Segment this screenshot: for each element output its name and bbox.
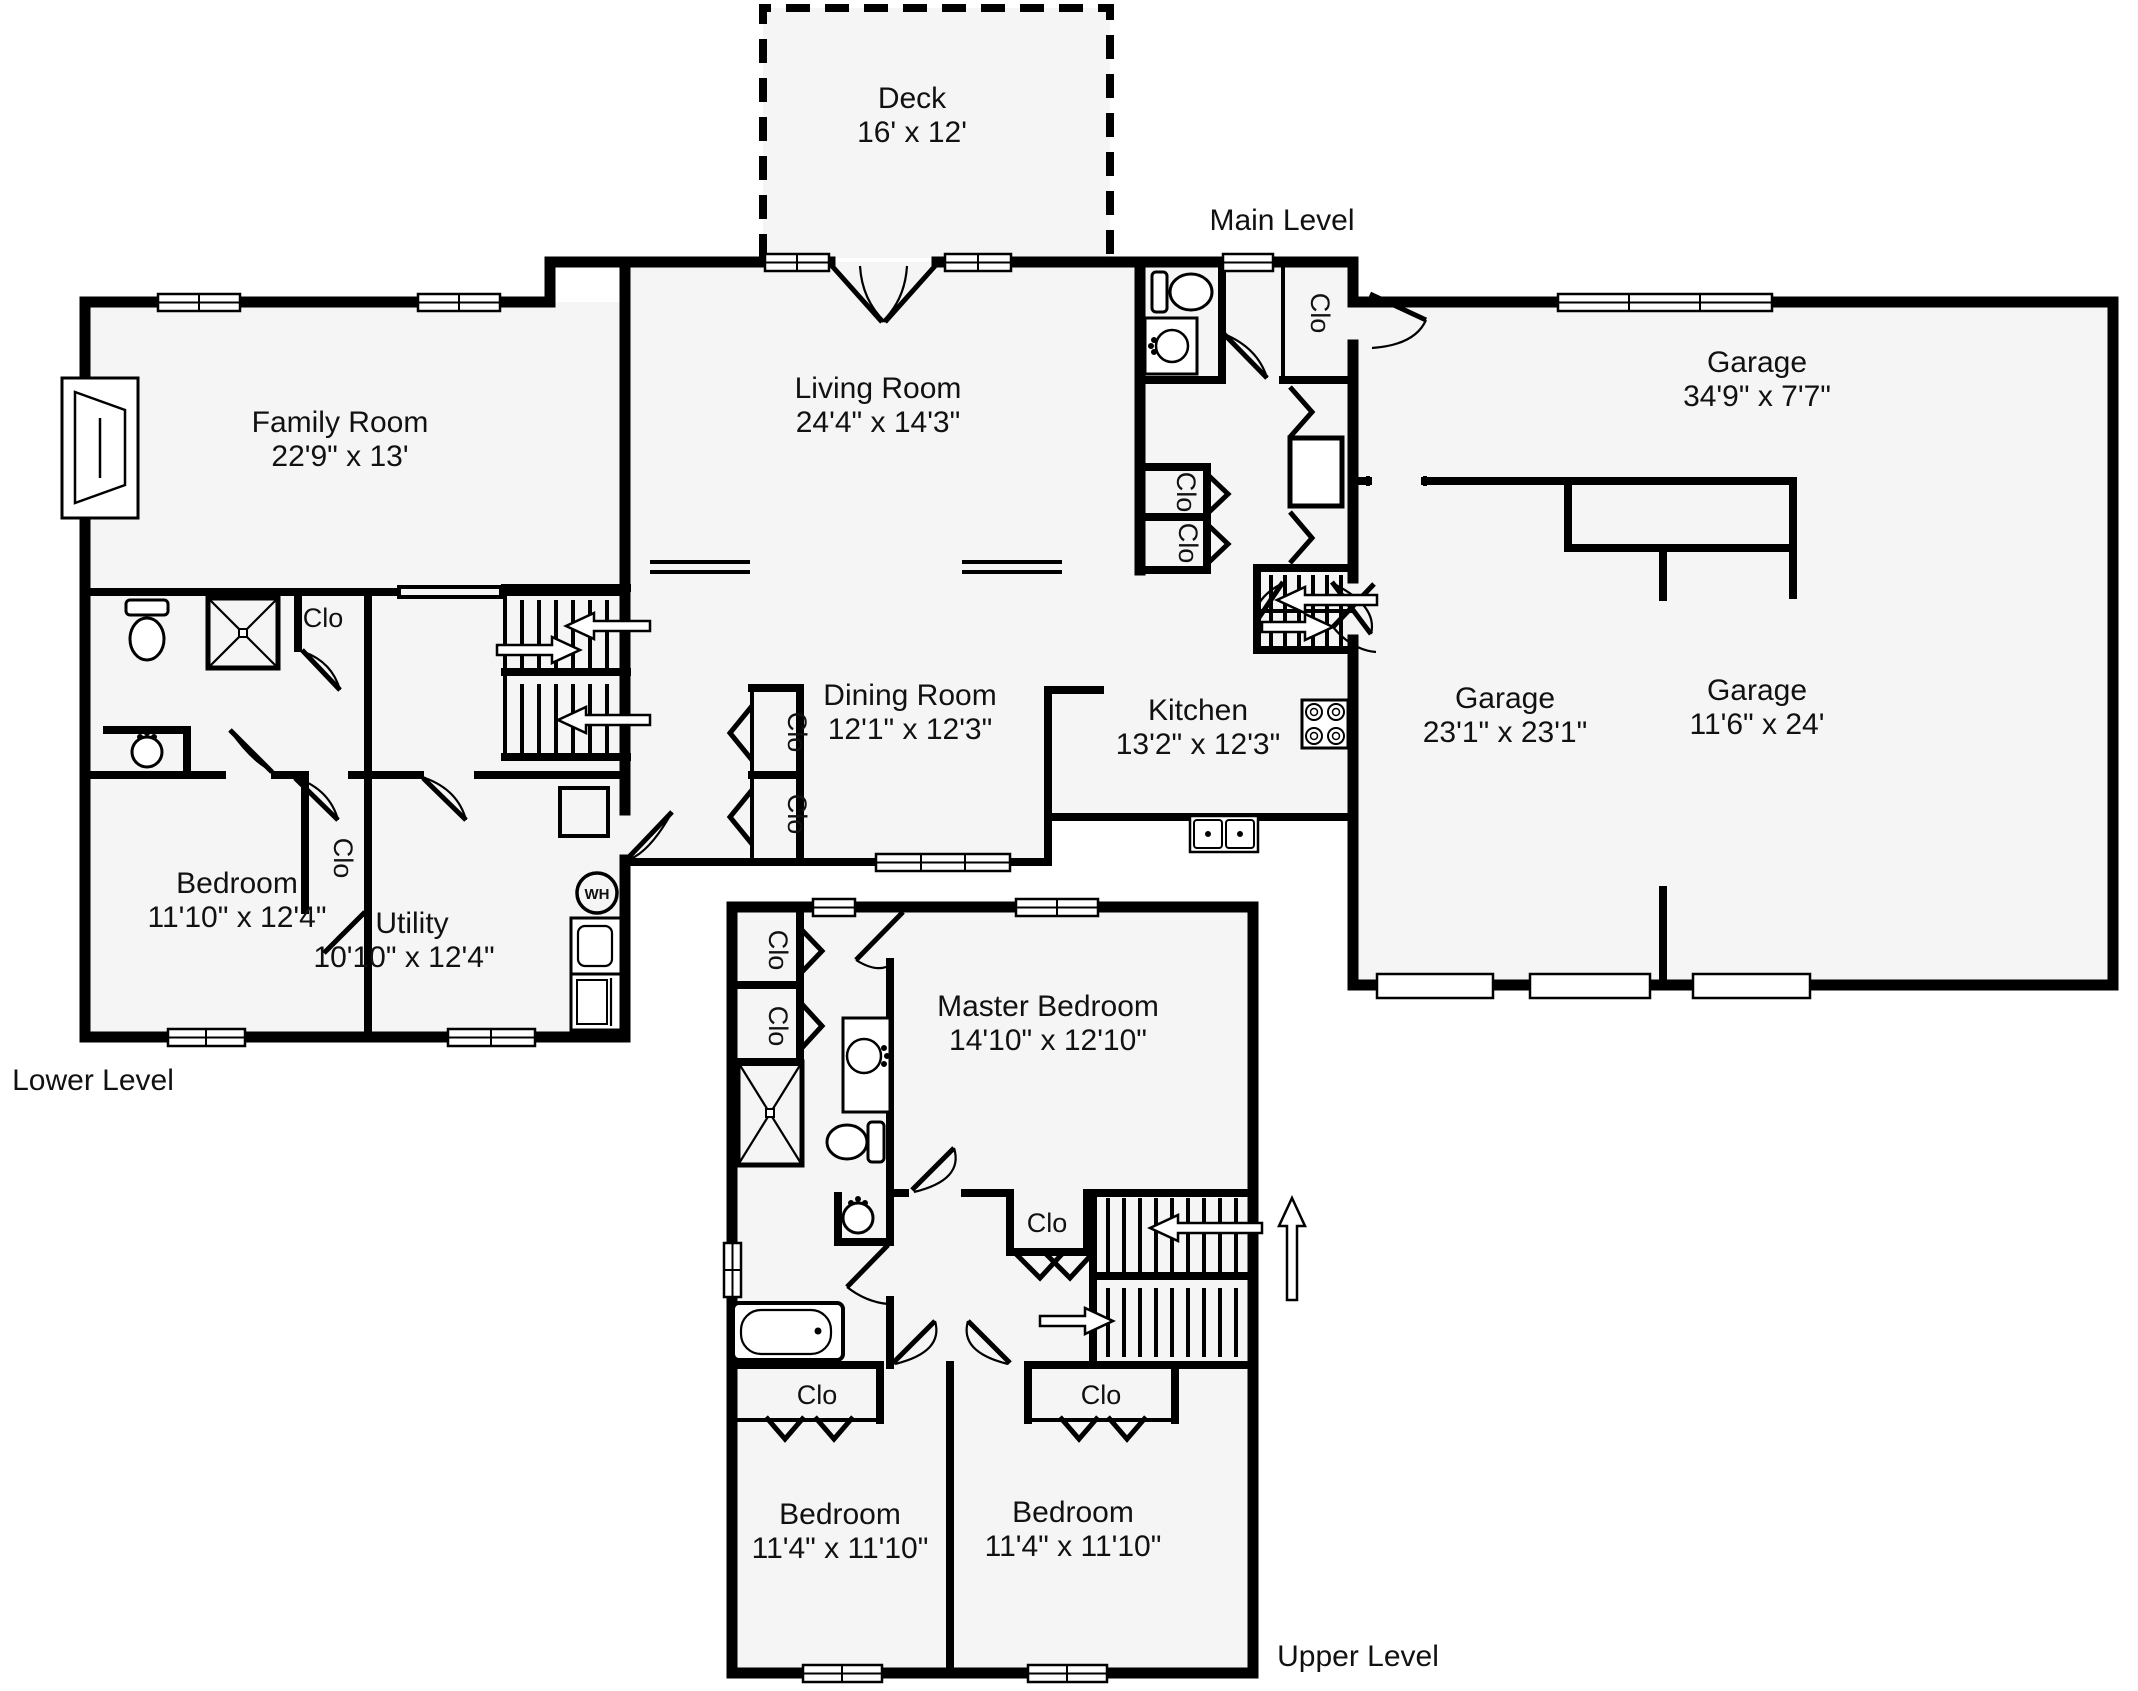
bathtub-fixture xyxy=(733,1303,843,1360)
room-dims: 11'6" x 24' xyxy=(1690,708,1825,741)
laundry-tub-fixture xyxy=(571,918,621,974)
room-name: Garage xyxy=(1707,346,1807,379)
window xyxy=(1223,254,1273,271)
water-heater-label: WH xyxy=(585,886,610,903)
vanity-sink-fixture xyxy=(843,1018,890,1112)
window xyxy=(1558,294,1772,311)
window xyxy=(876,854,1010,871)
room-name: Dining Room xyxy=(823,679,996,712)
garage-door xyxy=(1530,974,1650,998)
room-name: Bedroom xyxy=(176,867,298,900)
floor-plan-drawing: Deck 16' x 12' Living Room 24'4" x 14'3"… xyxy=(0,0,2138,1691)
room-label-dining-room: Dining Room 12'1" x 12'3" xyxy=(823,679,996,746)
closet-label: Clo xyxy=(1305,293,1335,334)
room-dims: 14'10" x 12'10" xyxy=(949,1024,1147,1057)
closet-label: Clo xyxy=(328,838,358,879)
window xyxy=(418,294,500,311)
room-name: Deck xyxy=(878,82,947,115)
room-dims: 23'1" x 23'1" xyxy=(1423,716,1588,749)
stove-fixture xyxy=(1302,700,1348,748)
closet-label: Clo xyxy=(782,712,812,753)
window xyxy=(803,1665,882,1682)
window xyxy=(448,1029,535,1046)
window xyxy=(1028,1665,1107,1682)
kitchen-sink-fixture xyxy=(1190,816,1258,852)
room-dims: 10'10" x 12'4" xyxy=(313,941,494,974)
window xyxy=(724,1243,741,1297)
toilet-fixture xyxy=(1152,272,1212,312)
closet-label: Clo xyxy=(1027,1208,1068,1238)
room-label-master-bedroom: Master Bedroom 14'10" x 12'10" xyxy=(937,990,1159,1057)
room-dims: 22'9" x 13' xyxy=(271,440,408,473)
garage-door xyxy=(1377,974,1493,998)
room-dims: 11'4" x 11'10" xyxy=(752,1532,929,1565)
room-dims: 16' x 12' xyxy=(857,116,967,149)
closet-label: Clo xyxy=(1081,1380,1122,1410)
level-label-lower: Lower Level xyxy=(12,1064,174,1097)
refrigerator-fixture xyxy=(1290,438,1342,506)
window xyxy=(158,294,240,311)
arrow xyxy=(1279,1198,1305,1300)
room-name: Bedroom xyxy=(779,1498,901,1531)
window xyxy=(168,1029,245,1046)
closet-label: Clo xyxy=(782,794,812,835)
window xyxy=(1016,899,1098,916)
room-name: Bedroom xyxy=(1012,1496,1134,1529)
closet-label: Clo xyxy=(763,930,793,971)
room-name: Master Bedroom xyxy=(937,990,1159,1023)
room-dims: 13'2" x 12'3" xyxy=(1116,728,1281,761)
floor-plan-page: Deck 16' x 12' Living Room 24'4" x 14'3"… xyxy=(0,0,2138,1691)
closet-label: Clo xyxy=(763,1006,793,1047)
closet-label: Clo xyxy=(797,1380,838,1410)
room-name: Garage xyxy=(1455,682,1555,715)
room-dims: 11'10" x 12'4" xyxy=(148,901,327,934)
room-name: Living Room xyxy=(795,372,962,405)
room-label-garage-right: Garage 11'6" x 24' xyxy=(1690,674,1825,741)
room-name: Garage xyxy=(1707,674,1807,707)
toilet-fixture xyxy=(827,1122,884,1162)
garage-door xyxy=(1693,974,1810,998)
level-label-main: Main Level xyxy=(1209,204,1354,237)
washer-fixture xyxy=(571,974,621,1030)
room-dims: 34'9" x 7'7" xyxy=(1683,380,1831,413)
garage-doors xyxy=(1377,974,1810,998)
room-dims: 24'4" x 14'3" xyxy=(796,406,961,439)
fireplace-fixture xyxy=(62,378,138,518)
closet-label: Clo xyxy=(303,603,344,633)
vanity-sink-fixture xyxy=(1145,318,1197,374)
level-label-upper: Upper Level xyxy=(1277,1640,1439,1673)
window xyxy=(813,899,855,916)
room-name: Kitchen xyxy=(1148,694,1248,727)
room-label-living-room: Living Room 24'4" x 14'3" xyxy=(795,372,962,439)
room-label-family-room: Family Room 22'9" x 13' xyxy=(252,406,429,473)
room-name: Family Room xyxy=(252,406,429,439)
window xyxy=(945,254,1011,271)
closet-label: Clo xyxy=(1171,472,1201,513)
window xyxy=(765,254,829,271)
room-name: Utility xyxy=(375,907,448,940)
room-dims: 11'4" x 11'10" xyxy=(985,1530,1162,1563)
toilet-fixture xyxy=(126,600,168,660)
closet-label: Clo xyxy=(1173,523,1203,564)
room-dims: 12'1" x 12'3" xyxy=(828,713,993,746)
